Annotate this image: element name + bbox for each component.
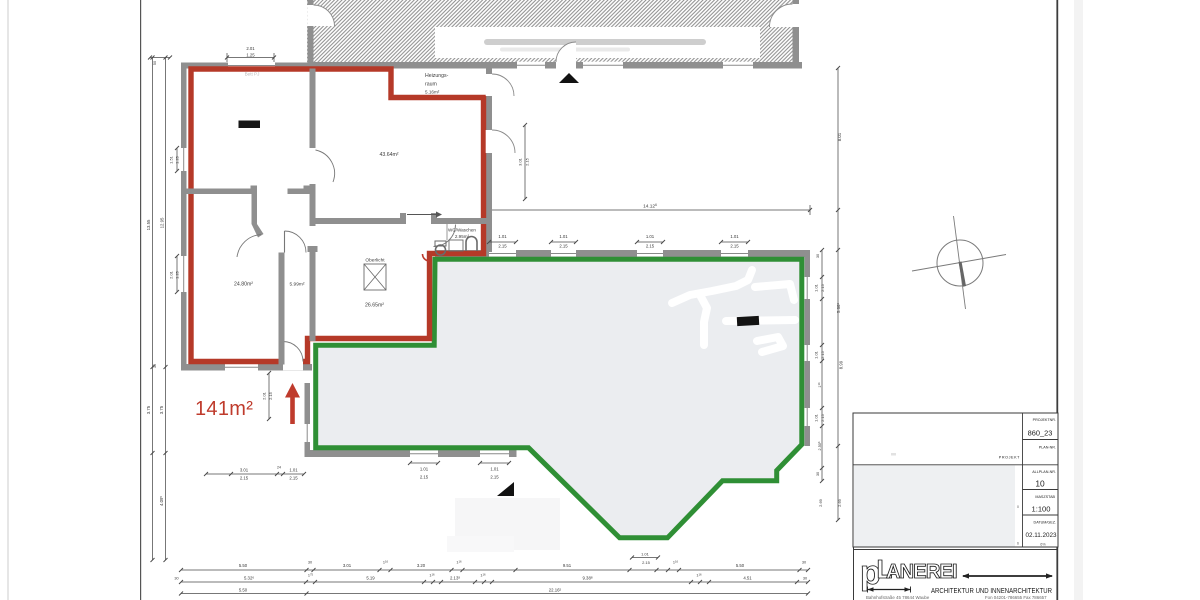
svg-text:10: 10: [1035, 479, 1045, 489]
svg-text:2.15: 2.15: [559, 243, 568, 248]
svg-text:2.15: 2.15: [498, 243, 507, 248]
svg-text:MASZSTAB: MASZSTAB: [1035, 495, 1055, 499]
svg-text:8.01: 8.01: [837, 132, 842, 141]
svg-text:1.25: 1.25: [175, 155, 180, 164]
svg-text:Bahnhofstraße 45 78644 Waube: Bahnhofstraße 45 78644 Waube: [866, 595, 930, 600]
svg-text:5.50: 5.50: [239, 588, 248, 593]
svg-text:30: 30: [803, 577, 807, 581]
svg-text:raum: raum: [425, 82, 437, 88]
svg-text:14.126: 14.126: [643, 203, 657, 209]
svg-text:12.95: 12.95: [160, 217, 165, 228]
svg-text:2.15: 2.15: [820, 283, 825, 292]
svg-text:30: 30: [816, 472, 820, 476]
svg-text:2.15: 2.15: [268, 391, 273, 400]
svg-text:ALLPLAN-NR.: ALLPLAN-NR.: [1032, 470, 1056, 474]
svg-text:2.69: 2.69: [818, 498, 823, 507]
svg-text:1.01: 1.01: [490, 467, 499, 472]
svg-text:2.15: 2.15: [730, 243, 739, 248]
svg-text:1.01: 1.01: [641, 552, 650, 557]
svg-text:2.15: 2.15: [525, 157, 530, 166]
svg-text:30: 30: [308, 561, 312, 565]
svg-text:5.19: 5.19: [366, 576, 375, 581]
svg-text:30: 30: [153, 364, 157, 368]
svg-text:Heizungs-: Heizungs-: [425, 73, 449, 79]
svg-text:1.01: 1.01: [814, 413, 819, 422]
svg-text:1.51: 1.51: [169, 155, 174, 164]
svg-text:Oberlicht: Oberlicht: [365, 258, 385, 264]
svg-text:1.01: 1.01: [814, 283, 819, 292]
svg-text:5.16m²: 5.16m²: [425, 90, 440, 95]
svg-text:PROJEKT: PROJEKT: [999, 456, 1020, 460]
svg-text:4.51: 4.51: [743, 576, 752, 581]
svg-text:2.15: 2.15: [490, 475, 499, 480]
svg-text:3.20: 3.20: [417, 563, 426, 568]
svg-text:9.51: 9.51: [563, 563, 572, 568]
svg-text:50: 50: [153, 61, 157, 65]
svg-text:24.80m²: 24.80m²: [234, 282, 253, 288]
svg-text:PROJEKTNR.: PROJEKTNR.: [1033, 418, 1056, 422]
svg-text:1.25: 1.25: [175, 270, 180, 279]
svg-text:0: 0: [1017, 505, 1019, 509]
svg-text:2.15: 2.15: [646, 243, 655, 248]
svg-text:2.15: 2.15: [289, 476, 298, 481]
svg-text:Bett PJ: Bett PJ: [245, 72, 260, 77]
svg-text:2.01: 2.01: [262, 391, 267, 400]
svg-text:WC/Waschen: WC/Waschen: [448, 228, 476, 233]
svg-text:1:100: 1:100: [1031, 505, 1050, 514]
svg-text:2.15: 2.15: [642, 560, 651, 565]
svg-text:02.11.2023: 02.11.2023: [1025, 532, 1057, 539]
svg-text:3.01: 3.01: [518, 157, 523, 166]
svg-text:1.01: 1.01: [730, 234, 739, 239]
svg-text:2.15: 2.15: [820, 413, 825, 422]
svg-text:2.01: 2.01: [246, 46, 255, 51]
svg-text:3.01: 3.01: [240, 468, 249, 473]
svg-text:5.50: 5.50: [736, 563, 745, 568]
svg-text:1.25: 1.25: [246, 53, 255, 58]
svg-text:DATUM/GEZ.: DATUM/GEZ.: [1034, 521, 1056, 525]
svg-text:30: 30: [816, 254, 820, 258]
svg-text:2.15: 2.15: [420, 475, 429, 480]
svg-text:141m²: 141m²: [195, 398, 253, 420]
svg-text:1.01: 1.01: [420, 467, 429, 472]
svg-text:2.69: 2.69: [837, 498, 842, 507]
svg-text:860_23: 860_23: [1028, 429, 1053, 438]
svg-text:ARCHITEKTUR UND INNENARCHITEKT: ARCHITEKTUR UND INNENARCHITEKTUR: [931, 586, 1052, 595]
svg-text:30: 30: [174, 577, 178, 581]
svg-text:3.75: 3.75: [159, 405, 164, 414]
svg-text:30: 30: [802, 561, 806, 565]
svg-text:3.75: 3.75: [146, 405, 151, 414]
svg-text:ANEREI: ANEREI: [886, 561, 957, 583]
svg-text:2.95m²: 2.95m²: [455, 234, 470, 239]
svg-text:Fon 04201-786655 Fax 786657: Fon 04201-786655 Fax 786657: [985, 595, 1047, 600]
svg-text:1.01: 1.01: [289, 468, 298, 473]
svg-text:5.99m²: 5.99m²: [290, 282, 305, 288]
svg-text:1.01: 1.01: [498, 234, 507, 239]
svg-text:3.01: 3.01: [343, 563, 352, 568]
svg-text:1.01: 1.01: [646, 234, 655, 239]
svg-text:24: 24: [277, 466, 281, 470]
svg-text:5.50: 5.50: [239, 563, 248, 568]
svg-text:43.64m²: 43.64m²: [379, 152, 398, 158]
svg-text:6: 6: [1017, 542, 1019, 546]
svg-text:2.15: 2.15: [240, 476, 249, 481]
svg-text:8.99: 8.99: [839, 360, 844, 369]
svg-text:13.55: 13.55: [146, 219, 151, 230]
svg-text:PLAN-NR.: PLAN-NR.: [1039, 446, 1056, 450]
svg-text:1.01: 1.01: [559, 234, 568, 239]
svg-text:1.01: 1.01: [814, 350, 819, 359]
svg-text:26.65m²: 26.65m²: [365, 303, 384, 309]
svg-text:6%: 6%: [1040, 543, 1046, 547]
svg-text:2.01: 2.01: [169, 270, 174, 279]
svg-text:2.15: 2.15: [820, 350, 825, 359]
